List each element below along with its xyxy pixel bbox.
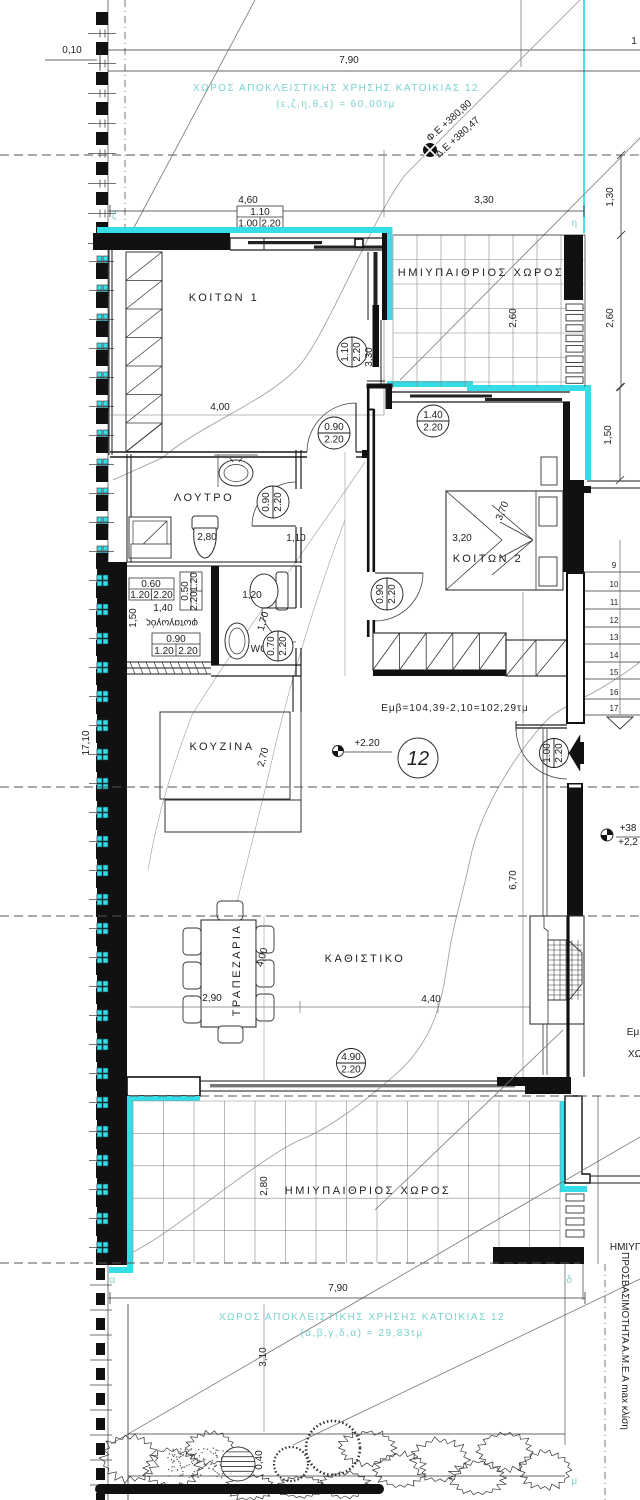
svg-text:10: 10 xyxy=(610,580,619,589)
svg-text:0,40: 0,40 xyxy=(254,1450,265,1470)
svg-text:(ε,ζ,η,θ,ε) = 60,00τμ: (ε,ζ,η,θ,ε) = 60,00τμ xyxy=(276,99,396,110)
svg-text:2.20: 2.20 xyxy=(278,636,289,656)
svg-text:δ: δ xyxy=(566,1275,573,1286)
svg-text:1.10: 1.10 xyxy=(250,207,270,218)
svg-text:ζ: ζ xyxy=(112,211,118,222)
svg-text:2.20: 2.20 xyxy=(153,590,173,601)
svg-text:12: 12 xyxy=(407,748,429,770)
svg-text:7,90: 7,90 xyxy=(328,1283,348,1294)
svg-text:2.20: 2.20 xyxy=(178,646,198,657)
svg-text:1,50: 1,50 xyxy=(128,608,139,628)
svg-text:4,00: 4,00 xyxy=(210,402,230,413)
svg-text:2,80: 2,80 xyxy=(259,1176,270,1196)
svg-text:0.90: 0.90 xyxy=(324,422,344,433)
svg-text:ΚΟΥΖΙΝΑ: ΚΟΥΖΙΝΑ xyxy=(189,741,254,753)
svg-text:1,40: 1,40 xyxy=(153,603,173,614)
svg-text:2.20: 2.20 xyxy=(273,492,284,512)
svg-text:15: 15 xyxy=(610,668,619,677)
svg-text:0.70: 0.70 xyxy=(266,636,277,656)
svg-text:ΚΟΙΤΩΝ 1: ΚΟΙΤΩΝ 1 xyxy=(189,292,259,304)
svg-text:17: 17 xyxy=(610,704,619,713)
svg-text:ΚΟΙΤΩΝ 2: ΚΟΙΤΩΝ 2 xyxy=(453,553,523,565)
svg-text:2,90: 2,90 xyxy=(202,993,222,1004)
svg-text:1.20: 1.20 xyxy=(130,590,150,601)
svg-text:9: 9 xyxy=(612,561,617,570)
svg-text:1.10: 1.10 xyxy=(340,342,351,362)
svg-text:ΤΡΑΠΕΖΑΡΙΑ: ΤΡΑΠΕΖΑΡΙΑ xyxy=(231,924,243,1017)
svg-text:(α,β,γ,δ,α) = 29,83τμ: (α,β,γ,δ,α) = 29,83τμ xyxy=(300,1328,423,1339)
svg-text:ΧΩΡΟΣ ΑΠΟΚΛΕΙΣΤΙΚΗΣ ΧΡΗΣΗΣ: ΧΩΡΟΣ ΑΠΟΚΛΕΙΣΤΙΚΗΣ ΧΡΗΣΗΣ ΚΑΤΟΙΚΙΑΣ 12 xyxy=(193,83,479,94)
svg-text:4,60: 4,60 xyxy=(238,195,258,206)
svg-text:1.20: 1.20 xyxy=(154,646,174,657)
svg-text:11: 11 xyxy=(610,598,619,607)
svg-text:3,30: 3,30 xyxy=(364,347,375,367)
svg-text:ΧΩΡΟΣ ΑΠΟΚΛΕΙΣΤΙΚΗΣ ΧΡΗΣΗΣ: ΧΩΡΟΣ ΑΠΟΚΛΕΙΣΤΙΚΗΣ ΧΡΗΣΗΣ ΚΑΤΟΙΚΙΑΣ 12 xyxy=(219,1312,505,1323)
svg-text:ΗΜΙΥΠΑΙΘΡΙΟΣ ΧΩΡΟΣ: ΗΜΙΥΠΑΙΘΡΙΟΣ ΧΩΡΟΣ xyxy=(398,267,564,279)
svg-text:ΧΩ: ΧΩ xyxy=(628,1049,640,1060)
svg-text:Εμ: Εμ xyxy=(627,1027,640,1038)
svg-text:α: α xyxy=(109,1275,116,1286)
svg-text:3,10: 3,10 xyxy=(258,1347,269,1367)
svg-text:0.90: 0.90 xyxy=(166,634,186,645)
svg-text:7,90: 7,90 xyxy=(339,55,359,66)
svg-text:1.40: 1.40 xyxy=(423,410,443,421)
svg-text:1,50: 1,50 xyxy=(603,425,614,445)
svg-text:16: 16 xyxy=(610,688,619,697)
svg-text:ΚΑΘΙΣΤΙΚΟ: ΚΑΘΙΣΤΙΚΟ xyxy=(325,953,406,965)
svg-text:14: 14 xyxy=(610,651,619,660)
svg-text:1.20: 1.20 xyxy=(189,572,200,592)
svg-text:1,10: 1,10 xyxy=(286,533,306,544)
svg-text:0.90: 0.90 xyxy=(375,584,386,604)
svg-text:2,60: 2,60 xyxy=(508,308,519,328)
svg-text:2.20: 2.20 xyxy=(189,591,200,611)
svg-text:12: 12 xyxy=(610,616,619,625)
svg-text:4.90: 4.90 xyxy=(341,1052,361,1063)
svg-text:0,10: 0,10 xyxy=(62,45,82,56)
svg-text:+2,2: +2,2 xyxy=(618,837,638,848)
svg-text:1: 1 xyxy=(631,36,637,47)
svg-text:ΗΜΙΥΠΑΙΘΡΙΟΣ ΧΩΡΟΣ: ΗΜΙΥΠΑΙΘΡΙΟΣ ΧΩΡΟΣ xyxy=(285,1185,451,1197)
svg-text:+2.20: +2.20 xyxy=(354,738,380,749)
svg-text:6,70: 6,70 xyxy=(508,870,519,890)
svg-text:0.90: 0.90 xyxy=(261,492,272,512)
svg-text:2,80: 2,80 xyxy=(197,532,217,543)
svg-text:ΛΟΥΤΡΟ: ΛΟΥΤΡΟ xyxy=(174,492,234,504)
svg-text:2.20: 2.20 xyxy=(341,1065,361,1076)
svg-text:1,30: 1,30 xyxy=(605,187,616,207)
svg-text:3,30: 3,30 xyxy=(474,195,494,206)
svg-text:3,20: 3,20 xyxy=(452,533,472,544)
svg-text:2.20: 2.20 xyxy=(554,743,565,763)
svg-text:2.20: 2.20 xyxy=(324,435,344,446)
svg-text:Εμβ=104,39-2,10=102,29τμ: Εμβ=104,39-2,10=102,29τμ xyxy=(381,703,529,714)
svg-text:0.60: 0.60 xyxy=(141,579,161,590)
svg-text:17,10: 17,10 xyxy=(81,730,92,755)
svg-text:η: η xyxy=(571,218,578,229)
svg-text:μ: μ xyxy=(571,1476,578,1487)
svg-text:13: 13 xyxy=(610,633,619,642)
svg-text:ΠΡΟΣΒΑΣΙΜΟΤΗΤΑ Α.Μ.Ε.Α max κ: ΠΡΟΣΒΑΣΙΜΟΤΗΤΑ Α.Μ.Ε.Α max κλίση xyxy=(619,1252,631,1430)
svg-text:φωταγωγός: φωταγωγός xyxy=(146,617,198,629)
svg-text:2,60: 2,60 xyxy=(605,308,616,328)
svg-text:+38: +38 xyxy=(620,823,637,834)
svg-text:1,20: 1,20 xyxy=(242,590,262,601)
svg-text:2.20: 2.20 xyxy=(423,423,443,434)
svg-text:2.20: 2.20 xyxy=(387,584,398,604)
svg-text:2.20: 2.20 xyxy=(352,342,363,362)
